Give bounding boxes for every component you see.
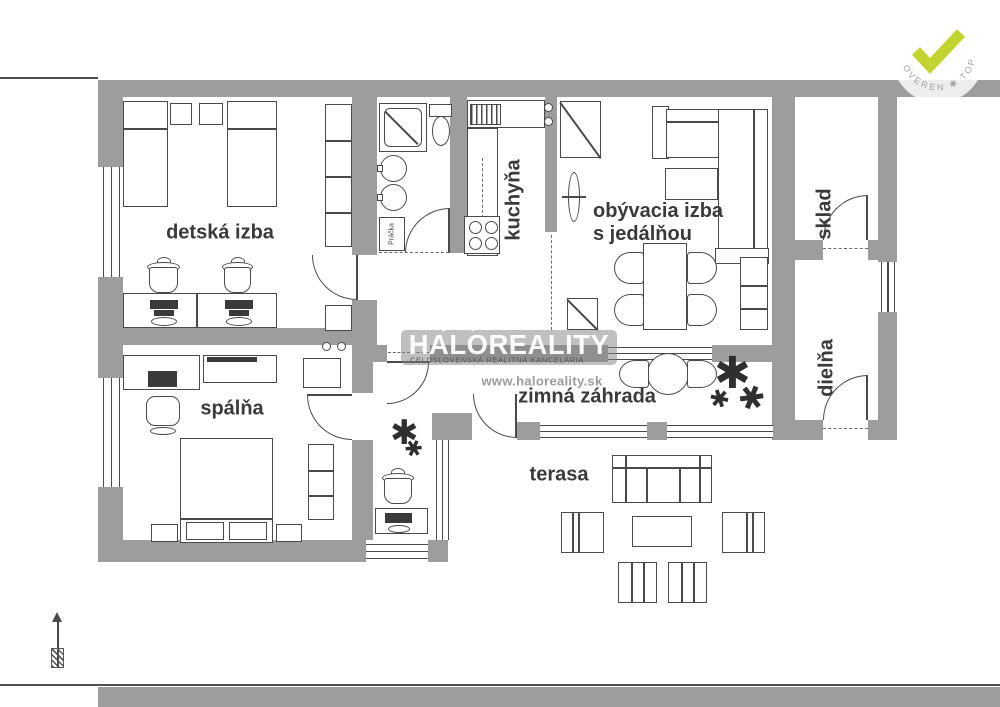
window [436, 440, 449, 540]
door-leaf [356, 255, 358, 300]
wall [878, 97, 897, 262]
wall [432, 413, 472, 440]
stand-device [385, 513, 412, 523]
desk-monitor-stand [229, 310, 249, 316]
toilet-bowl [432, 116, 450, 146]
desk-monitor-stand [154, 310, 174, 316]
footer-bar [98, 687, 1000, 707]
dresser-detail [207, 357, 257, 362]
stand-base [388, 525, 410, 533]
wall [428, 540, 448, 562]
bed-pillow-line [228, 128, 276, 130]
terrace-sofa-arm [699, 456, 701, 502]
wall [647, 422, 667, 440]
window [103, 378, 120, 487]
pot-plant-icon [222, 257, 253, 293]
wall [795, 240, 823, 260]
garden-chair [619, 360, 649, 388]
room-label-spalna: spálňa [200, 398, 263, 421]
wall-marker [544, 103, 553, 112]
website-watermark: www.haloreality.sk [482, 374, 603, 389]
nightstand [276, 524, 302, 542]
door-arc [473, 394, 517, 438]
wall [98, 540, 366, 562]
nightstand [151, 524, 178, 542]
bed-pillow [229, 522, 267, 540]
dining-chair [614, 252, 644, 284]
verified-badge: OVEREN ✱ TOP [889, 8, 987, 106]
cabinet-shelf [741, 308, 767, 310]
threshold [823, 428, 868, 429]
wall [517, 422, 540, 440]
brand-tagline: CELOSLOVENSKÁ REALITNÁ KANCELÁRIA [410, 356, 584, 365]
boundary-line [0, 684, 1000, 686]
pot-plant-icon [147, 257, 180, 293]
terrace-sofa-arm [625, 456, 627, 502]
dining-chair [614, 294, 644, 326]
wall [868, 240, 878, 260]
room-label-line: s jedálňou [593, 223, 723, 246]
window [540, 425, 647, 438]
sofa [718, 109, 768, 250]
wall [795, 420, 823, 440]
terrace-chair-line [631, 563, 633, 602]
door-arc [387, 362, 429, 404]
terrace-sofa [612, 455, 712, 503]
garden-chair [687, 360, 717, 388]
window [881, 262, 895, 312]
sink-tap [377, 194, 383, 201]
door-arc [312, 255, 357, 300]
stove-burner [485, 221, 498, 234]
desk-chair [151, 317, 177, 326]
terrace-chair-line [643, 563, 645, 602]
coffee-table [665, 168, 718, 200]
wall [772, 97, 795, 440]
terrace-sofa-back [613, 467, 711, 469]
stove-burner [469, 221, 482, 234]
sink [380, 155, 407, 182]
door-leaf [515, 394, 517, 438]
cabinet [325, 305, 352, 331]
wall [352, 300, 377, 345]
window [667, 425, 773, 438]
room-label-obyvacia-izba: obývacia izba s jedálňou [593, 200, 723, 246]
wardrobe-shelf [326, 140, 351, 142]
desk-monitor [225, 300, 253, 309]
wall [868, 420, 878, 440]
door-leaf [307, 394, 352, 396]
dining-table [643, 243, 687, 330]
bed-blanket-line [181, 518, 272, 520]
pot-icon [382, 468, 414, 504]
wardrobe-shelf [326, 212, 351, 214]
window [103, 167, 120, 277]
threshold [823, 248, 868, 249]
door-leaf [448, 208, 450, 253]
wall [98, 97, 123, 167]
terrace-armchair-line [572, 513, 574, 552]
nightstand [199, 103, 223, 125]
door-arc [307, 395, 352, 440]
wall-marker [337, 342, 346, 351]
terrace-armchair-line [746, 513, 748, 552]
threshold [551, 235, 552, 330]
bed-pillow-line [124, 128, 167, 130]
terrace-sofa-seam [679, 467, 681, 502]
room-label-line: obývacia izba [593, 200, 723, 223]
tv-line [562, 196, 586, 198]
terrace-sofa-seam [646, 467, 648, 502]
wall [98, 328, 352, 345]
wall-marker [322, 342, 331, 351]
dish-rack [470, 104, 501, 125]
wall [878, 312, 897, 440]
nightstand [170, 103, 192, 125]
north-arrow-base [51, 648, 64, 668]
sink-tap [377, 165, 383, 172]
terrace-table [632, 516, 692, 547]
office-chair [146, 396, 180, 426]
wall [352, 345, 373, 393]
bed-pillow [186, 522, 224, 540]
desk-monitor [150, 300, 178, 309]
bed [227, 101, 277, 207]
office-chair-base [150, 427, 176, 435]
room-label-dielna: dielňa [816, 339, 839, 397]
wall [98, 80, 1000, 97]
washing-machine-label: Práčka [389, 223, 396, 245]
door-arc [405, 208, 450, 253]
wall-marker [544, 117, 553, 126]
room-label-kuchyna: kuchyňa [503, 159, 526, 240]
terrace-armchair [722, 512, 765, 553]
wardrobe [308, 444, 334, 520]
sofa-back-line [753, 110, 755, 249]
floor-plan-canvas: Práčka [0, 0, 1000, 707]
terrace-chair [618, 562, 657, 603]
desk-printer [148, 371, 177, 387]
threshold [379, 252, 449, 253]
sink [380, 184, 407, 211]
door-leaf [866, 196, 868, 240]
north-arrow-head [52, 612, 62, 622]
dining-chair [687, 294, 717, 326]
wardrobe-shelf [326, 176, 351, 178]
desk-chair [226, 317, 252, 326]
stove-burner [485, 237, 498, 250]
terrace-chair-line [693, 563, 695, 602]
wall [352, 440, 373, 540]
terrace-armchair [561, 512, 604, 553]
counter-centerline [482, 158, 483, 218]
room-label-detska-izba: detská izba [166, 222, 274, 245]
terrace-chair-line [681, 563, 683, 602]
wardrobe-shelf [309, 470, 333, 472]
wall [373, 345, 387, 362]
wardrobe-shelf [309, 495, 333, 497]
cabinet [740, 257, 768, 330]
bed [123, 101, 168, 207]
cabinet [303, 358, 341, 388]
cabinet-shelf [741, 285, 767, 287]
wall [352, 97, 377, 255]
stove-burner [469, 237, 482, 250]
door-leaf [866, 376, 868, 420]
terrace-armchair-line [752, 513, 754, 552]
window [366, 544, 428, 559]
room-label-terasa: terasa [530, 464, 589, 487]
boundary-line [0, 77, 98, 79]
room-label-zimna-zahrada: zimná záhrada [518, 386, 656, 409]
terrace-chair [668, 562, 707, 603]
room-label-sklad: sklad [814, 188, 837, 239]
terrace-armchair-line [578, 513, 580, 552]
dining-chair [687, 252, 717, 284]
